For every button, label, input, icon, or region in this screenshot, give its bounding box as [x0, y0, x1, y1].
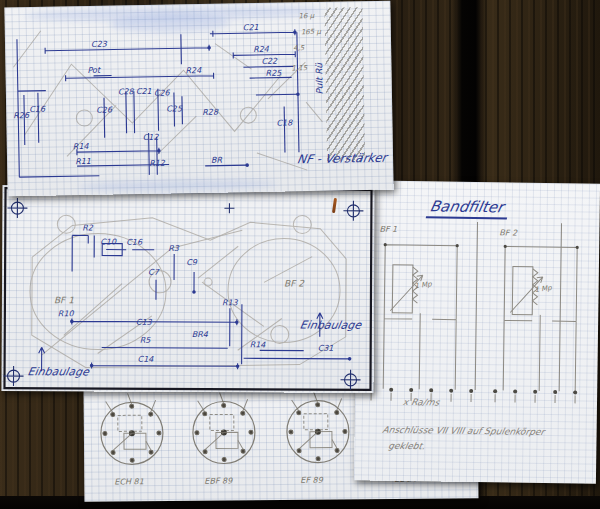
component-label: R14 — [250, 340, 266, 349]
tube-label: EF 89 — [300, 476, 322, 485]
component-label: C13 — [136, 318, 152, 327]
component-label: C26 — [96, 106, 112, 115]
component-label: C31 — [318, 344, 334, 353]
component-label: C28 — [118, 87, 134, 96]
component-label: C25 — [166, 104, 182, 113]
component-label: C21 — [243, 23, 259, 32]
component-label: C26 — [154, 89, 170, 98]
component-label: R25 — [265, 69, 281, 78]
component-label: C14 — [138, 355, 154, 364]
tube-label: ECH 81 — [114, 477, 143, 486]
tube-label: EBF 89 — [204, 476, 232, 485]
bandfilter-circuit-drawing — [354, 180, 600, 483]
component-label: R13 — [222, 298, 238, 307]
note-line: geklebt. — [387, 441, 426, 451]
component-label: C22 — [261, 57, 277, 66]
component-label: R24 — [253, 45, 269, 54]
component-label: R11 — [75, 157, 91, 166]
note-line: x Ra/ms — [402, 397, 440, 407]
component-label: R10 — [58, 309, 74, 318]
hatched-area: Pult Rü — [324, 7, 365, 162]
measurement-note: 4,5 — [293, 44, 304, 52]
region-label: BF 2 — [284, 279, 304, 289]
component-label: R5 — [140, 336, 151, 345]
component-label: Pot — [87, 66, 100, 75]
measurement-note: 165 µ — [301, 28, 321, 36]
component-label: C16 — [29, 105, 45, 114]
mounting-orientation-label: Einbaulage — [299, 319, 363, 332]
component-label: C7 — [148, 268, 159, 277]
component-label: R24 — [185, 66, 201, 75]
component-label: R14 — [73, 142, 89, 151]
sheet-title: NF - Verstärker — [296, 151, 388, 167]
sheet-nf-verstaerker: Pult Rü C23 C21 R24 C22 R25 R24 Pot C28 … — [4, 1, 393, 197]
component-label: R3 — [168, 244, 179, 253]
component-label: R28 — [202, 108, 218, 117]
component-label: BR4 — [192, 330, 208, 339]
component-label: C9 — [186, 258, 197, 267]
sheet-chassis-layout: R2 C10 C16 R3 C7 C9 R10 R13 C13 R5 C14 R… — [1, 185, 374, 393]
mounting-orientation-label: Einbaulage — [26, 365, 90, 378]
hatch-area-label: Pult Rü — [314, 63, 325, 95]
component-label: C12 — [143, 133, 159, 142]
measurement-note: 1,15 — [291, 64, 307, 72]
component-label: C21 — [136, 87, 152, 96]
component-label: C16 — [126, 238, 142, 247]
photo-of-hand-drawn-schematics: { "colors": { "ink_blue": "#2c3a92", "pe… — [0, 0, 600, 509]
component-label: C18 — [276, 118, 292, 127]
component-label: R12 — [149, 159, 165, 168]
sheet-bandfilter: Bandfilter BF 1 BF 2 1 Mp 1 Mp — [354, 180, 600, 483]
region-label: BF 1 — [54, 295, 74, 305]
component-label: R2 — [82, 223, 93, 232]
measurement-note: 16 µ — [299, 12, 315, 20]
layout-drawing — [1, 185, 374, 393]
component-label: BR — [211, 156, 222, 165]
component-label: R26 — [13, 111, 29, 120]
component-label: C10 — [100, 238, 116, 247]
component-label: C23 — [91, 40, 107, 49]
